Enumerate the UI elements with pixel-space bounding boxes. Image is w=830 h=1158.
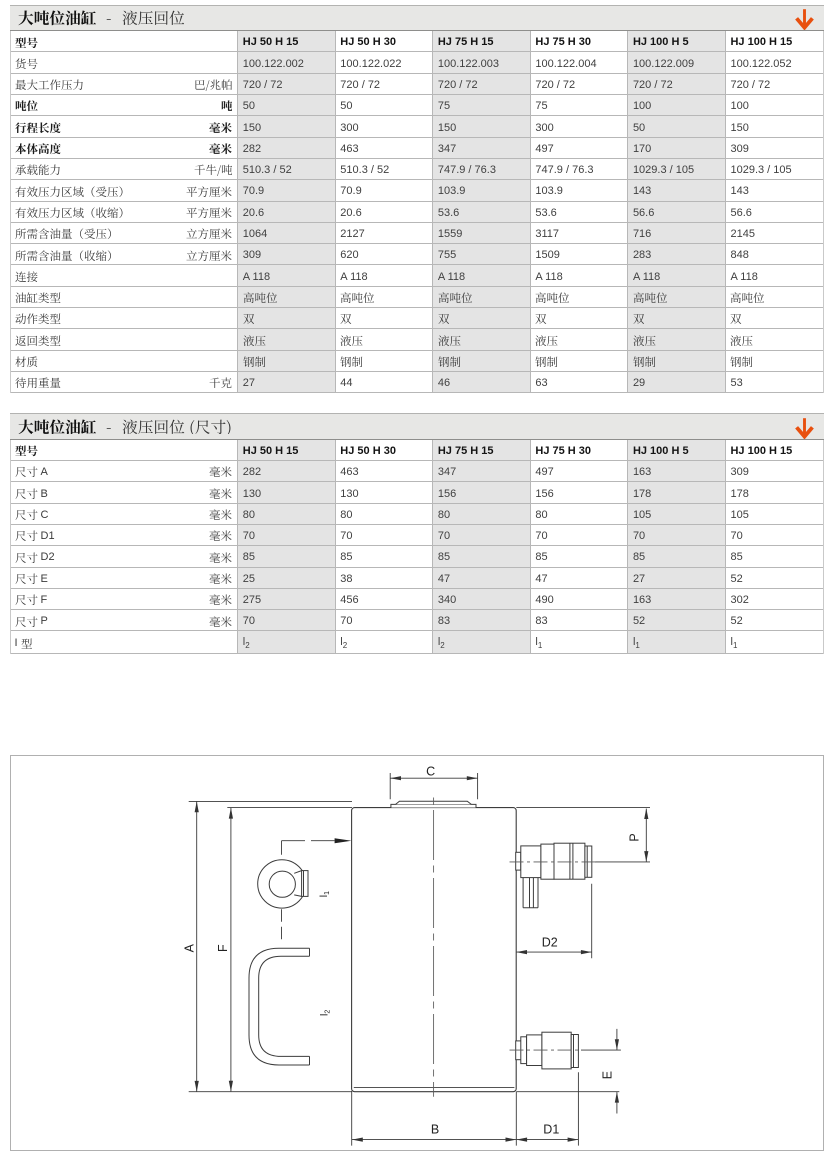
svg-text:l1: l1 bbox=[318, 891, 331, 897]
svg-text:l2: l2 bbox=[318, 1010, 331, 1016]
svg-text:E: E bbox=[601, 1071, 615, 1079]
svg-text:C: C bbox=[426, 764, 435, 778]
svg-text:B: B bbox=[431, 1122, 439, 1136]
svg-text:D1: D1 bbox=[543, 1122, 559, 1136]
svg-text:D2: D2 bbox=[542, 936, 558, 950]
svg-text:F: F bbox=[216, 944, 230, 952]
svg-text:A: A bbox=[182, 943, 196, 952]
svg-text:P: P bbox=[628, 833, 642, 841]
